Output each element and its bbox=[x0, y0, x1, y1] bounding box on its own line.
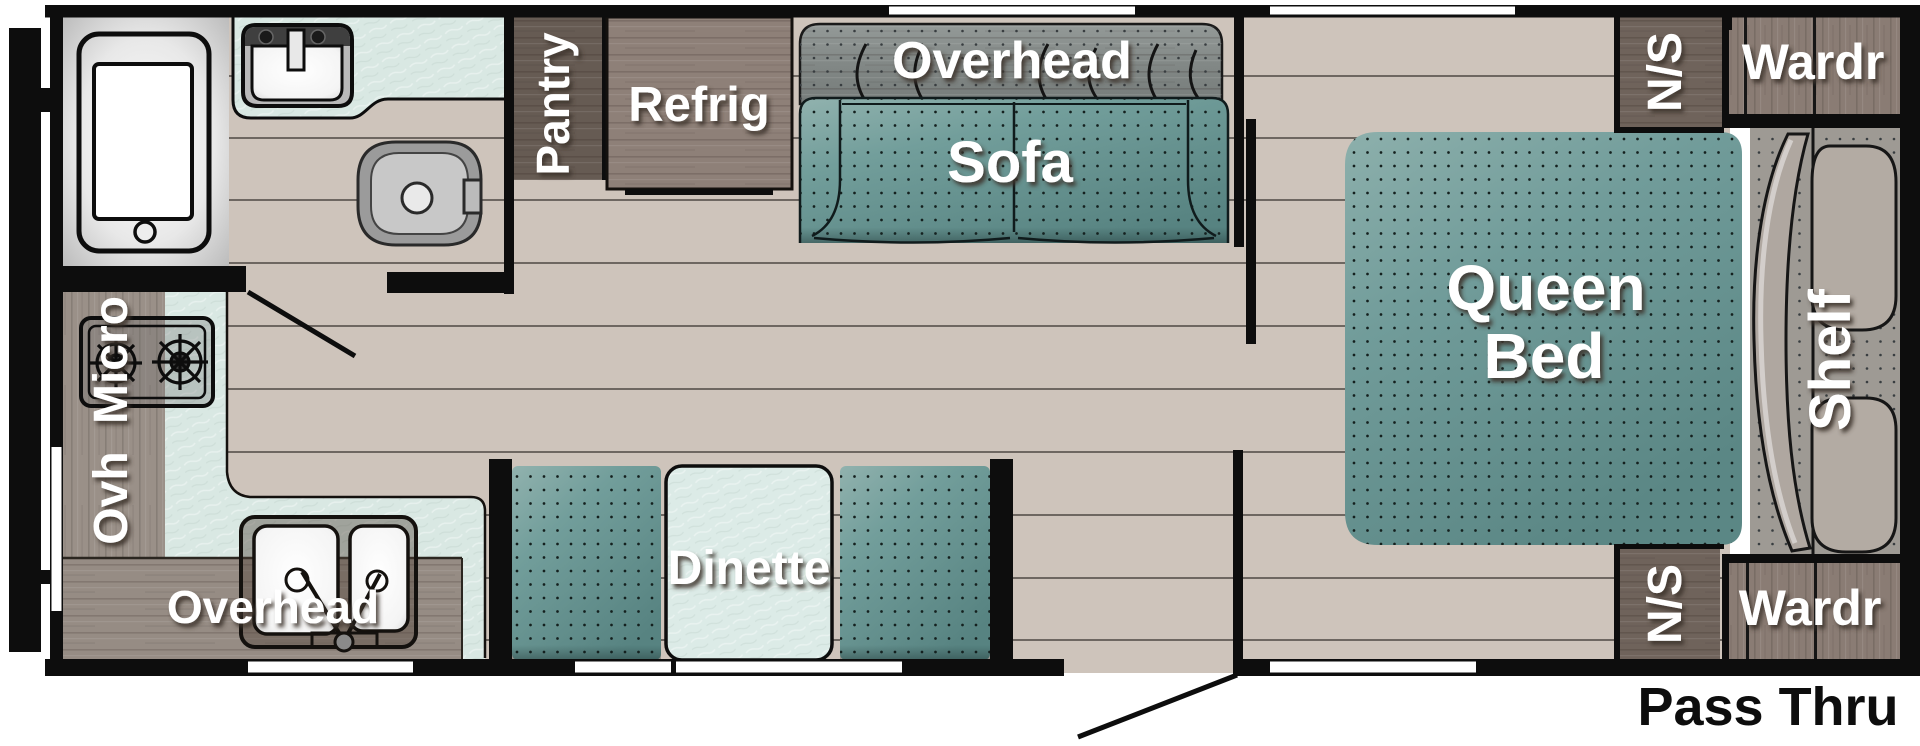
svg-text:N/S: N/S bbox=[1639, 564, 1692, 644]
svg-text:Overhead: Overhead bbox=[167, 581, 379, 633]
svg-text:N/S: N/S bbox=[1639, 32, 1692, 112]
svg-text:Bed: Bed bbox=[1484, 320, 1605, 392]
svg-text:Queen: Queen bbox=[1446, 252, 1645, 324]
svg-text:Dinette: Dinette bbox=[668, 542, 831, 595]
svg-text:Shelf: Shelf bbox=[1798, 288, 1863, 430]
svg-text:Wardr: Wardr bbox=[1739, 580, 1882, 636]
svg-text:Sofa: Sofa bbox=[947, 130, 1073, 195]
svg-text:Wardr: Wardr bbox=[1742, 34, 1885, 90]
svg-text:Pass Thru: Pass Thru bbox=[1637, 677, 1898, 737]
svg-text:Micro: Micro bbox=[85, 296, 138, 424]
svg-text:Refrig: Refrig bbox=[628, 78, 770, 132]
svg-text:Overhead: Overhead bbox=[892, 32, 1132, 90]
svg-text:Ovh: Ovh bbox=[85, 451, 138, 544]
svg-text:Pantry: Pantry bbox=[527, 32, 579, 176]
